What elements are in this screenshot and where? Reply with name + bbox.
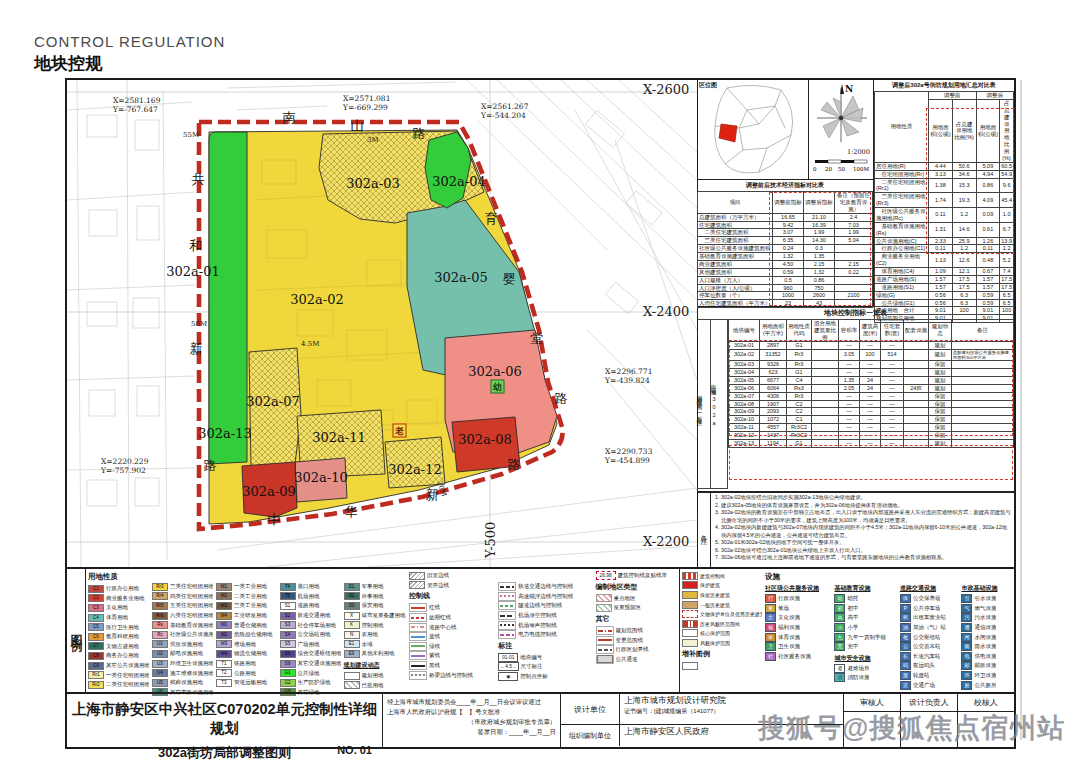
legend-item: ←4.5→ 尺寸标注 bbox=[498, 662, 592, 672]
landuse-swatch: S2 bbox=[280, 612, 296, 620]
summary-row: 道路广场用地(S)1.5717.5 1.5717.5 bbox=[875, 275, 1014, 283]
landuse-swatch: N bbox=[344, 631, 360, 639]
legend-item: 远期红线 bbox=[409, 613, 495, 623]
summary-row: 公共设施用地(C)2.3325.9 1.2613.9 bbox=[875, 237, 1014, 245]
facility-icon: 行 bbox=[765, 594, 776, 603]
heritage-swatch bbox=[682, 581, 698, 589]
control-row: 302a-121437Rr3C2 —— —保留 bbox=[729, 432, 1014, 440]
plan-map-svg: 老 幼 302a-01 302a-02 302a-03 302a-04 302a… bbox=[67, 80, 697, 567]
facility-icon: 初 bbox=[834, 604, 845, 613]
landuse-swatch: D1 bbox=[344, 583, 360, 591]
legend-item: 道路中心线 bbox=[409, 622, 495, 632]
legend-item: 历史风貌区范围线 bbox=[682, 619, 762, 629]
legend-item: T3 管道运输用地 bbox=[216, 678, 277, 688]
svg-text:婴: 婴 bbox=[503, 271, 516, 286]
facility-icon: 福 bbox=[765, 623, 776, 632]
landuse-swatch: Rc bbox=[152, 631, 168, 639]
facility-item: 完 完中 bbox=[834, 642, 897, 652]
location-highlight bbox=[719, 124, 737, 142]
line-swatch bbox=[409, 603, 427, 612]
legend-item: 绿线 bbox=[409, 642, 495, 652]
facility-item: 避 避难场所 bbox=[834, 664, 897, 674]
heritage-swatch bbox=[682, 610, 698, 618]
facility-item: 行 行政设施 bbox=[765, 594, 831, 604]
legend-item: G2 生产防护绿地 bbox=[280, 678, 341, 688]
legend-item: Rr4 四类住宅组团用地 bbox=[152, 592, 213, 602]
landuse-swatch: S6 bbox=[280, 650, 296, 658]
svg-text:堂: 堂 bbox=[531, 331, 544, 346]
legend-item: S5 广场用地 bbox=[280, 640, 341, 650]
control-table-cell: 地块控制指标一览表 编制地区类别：一般地区 街坊编号 302a 地块编号 用地面… bbox=[697, 307, 1014, 492]
eco-row: 基础教育设施建筑面积1.32 1.35 bbox=[698, 253, 873, 261]
legend-item: U5 殡葬设施用地 bbox=[152, 678, 213, 688]
facility-icon: 引 bbox=[961, 594, 972, 603]
legend-landuse-col4: T4 港口用地 T5 机场用地 S1 道路用地 S2 轨道交通用地 S3 社会停… bbox=[278, 569, 342, 692]
plot-label: 302a-05 bbox=[434, 270, 488, 285]
eco-row: 总建筑面积（万平方米）16.65 21.102.4 bbox=[698, 213, 873, 221]
north-label: N bbox=[845, 84, 853, 94]
legend-item: 规划用地 bbox=[344, 671, 407, 681]
legend-item: W2 危险品仓储用地 bbox=[216, 630, 277, 640]
landuse-swatch: W1 bbox=[216, 621, 232, 629]
facility-item: 菜 菜场 bbox=[765, 604, 831, 614]
facility-icon: 菜 bbox=[765, 604, 776, 613]
legend-landuse-col3: M1 一类工业用地 M2 二类工业用地 M3 三类工业用地 M4 工业研发用地 … bbox=[214, 569, 278, 692]
landuse-swatch: C4 bbox=[88, 614, 104, 622]
plan-sheet-page: CONTROL REGULATION 地块控规 bbox=[0, 0, 1080, 763]
legend-item: C2 商业服务业用地 bbox=[88, 594, 149, 604]
landuse-swatch: C6 bbox=[88, 633, 104, 641]
facility-item: 社 社区服务设施 bbox=[765, 652, 831, 662]
facility-item: 文 文化设施 bbox=[765, 613, 831, 623]
landuse-swatch: C3 bbox=[88, 604, 104, 612]
landuse-swatch: M4 bbox=[216, 612, 232, 620]
control-row: 302a-101072C1 —— —保留 bbox=[729, 416, 1014, 424]
org-unit-label: 组织编制单位 bbox=[561, 725, 620, 746]
plot-label: 302a-11 bbox=[312, 430, 366, 445]
eco-row: 三类住宅建筑面积6.35 14.305.04 bbox=[698, 237, 873, 245]
legend-item: G1 公共绿地 bbox=[280, 668, 341, 678]
eco-row: 其他建筑面积0.59 1.320.22 bbox=[698, 268, 873, 276]
facility-item: 电 供电设施 bbox=[961, 652, 1013, 662]
location-map bbox=[697, 80, 809, 180]
control-row: 302a-074306Rr3 —— —保留 bbox=[729, 392, 1014, 400]
elder-facility-icon: 老 bbox=[393, 424, 406, 437]
svg-text:中: 中 bbox=[268, 512, 281, 527]
mark-symbol: 01-01 bbox=[498, 653, 518, 662]
buildline-symbol: 26.98 bbox=[596, 571, 616, 580]
plot-label: 302a-04 bbox=[432, 174, 486, 189]
supplement-title: 增补图例 bbox=[682, 649, 762, 659]
facility-item: 保 公交保养场 bbox=[900, 594, 959, 604]
summary-row: 住宅组团用地(Rr)3.1334.6 4.9454.9 bbox=[875, 170, 1014, 178]
drawing-title: 302a街坊局部调整图则 NO. 01 bbox=[67, 744, 382, 762]
legend-item: 01-01 地块编号 bbox=[498, 653, 592, 663]
legend-item: 隧道边线与控制线 bbox=[498, 601, 592, 611]
summary-table-title: 调整后302a号街坊规划用地汇总对比表 bbox=[874, 80, 1014, 91]
line-swatch bbox=[596, 626, 614, 635]
facility-item: 消 消防设施 bbox=[834, 673, 897, 683]
line-swatch bbox=[596, 645, 614, 654]
landuse-swatch: W4 bbox=[216, 650, 232, 658]
note-item: 302a-02地块可结合302a-01地块公共绿地上开设人行出入口。 bbox=[721, 547, 1012, 555]
svg-text:55M: 55M bbox=[183, 131, 199, 139]
legend-item: U2 邮电设施用地 bbox=[152, 649, 213, 659]
landuse-swatch: W3 bbox=[216, 640, 232, 648]
landuse-swatch: C2 bbox=[88, 594, 104, 602]
legend-landuse-col1: 用地性质 C1 行政办公用地 C2 商业服务业用地 C3 文化用地 C4 体育用… bbox=[86, 569, 150, 692]
legend-item: U3 环境卫生设施用地 bbox=[152, 659, 213, 669]
facility-item: 雨 雨水设施 bbox=[961, 642, 1013, 652]
page-title-zh: 地块控规 bbox=[34, 52, 102, 75]
landuse-swatch: C8 bbox=[88, 652, 104, 660]
landuse-swatch: T3 bbox=[216, 679, 232, 687]
heritage-swatch bbox=[682, 620, 698, 628]
summary-row: 社区级公共服务设施用地(Rc)0.111.2 0.091.0 bbox=[875, 208, 1014, 223]
page-title-en: CONTROL REGULATION bbox=[34, 33, 225, 50]
plot-302a-01-area[interactable] bbox=[209, 132, 247, 464]
control-row: 302a-092093C2 —— —保留 bbox=[729, 408, 1014, 416]
legend-item: 一般历史建筑 bbox=[682, 600, 762, 610]
summary-row: 绿地(G)0.566.3 0.596.5 bbox=[875, 291, 1014, 299]
control-row: 302a-066064Rs3 2.0524 —24班规划 bbox=[729, 384, 1014, 392]
landuse-swatch: D2 bbox=[344, 592, 360, 600]
landuse-swatch: U1 bbox=[152, 640, 168, 648]
legend-item: C3 文化用地 bbox=[88, 603, 149, 613]
summary-row: 道路用地(S1)1.5717.5 1.5717.5 bbox=[875, 283, 1014, 291]
svg-text:20: 20 bbox=[825, 166, 832, 172]
landuse-swatch: D3 bbox=[344, 602, 360, 610]
legend-item: C4 体育用地 bbox=[88, 613, 149, 623]
landuse-swatch: M3 bbox=[216, 602, 232, 610]
summary-row: 居住用地(R)4.4450.6 5.0960.5 bbox=[875, 162, 1014, 170]
facility-icon: 枢 bbox=[900, 633, 911, 642]
landuse-swatch: G1 bbox=[280, 669, 296, 677]
summary-row: 二类住宅组团用地(Rr2)1.3815.3 0.869.6 bbox=[875, 178, 1014, 193]
zone-swatch bbox=[596, 604, 612, 612]
facility-item: 枢 公交枢纽站 bbox=[900, 632, 959, 642]
svg-text:老: 老 bbox=[394, 426, 404, 436]
landuse-swatch: G2 bbox=[280, 679, 296, 687]
legend-control-col1: 旧里边线 里弄边线 控制线 红线 远期红线 bbox=[407, 569, 496, 692]
legend-item: Rr5 五类住宅组团用地 bbox=[152, 601, 213, 611]
summary-table-cell: 调整后302a号街坊规划用地汇总对比表 用地性质 调整前 调整后 用地面积(公顷… bbox=[874, 80, 1014, 307]
facility-icon: 雨 bbox=[961, 642, 972, 651]
heritage-swatch bbox=[682, 572, 698, 580]
svg-text:路: 路 bbox=[204, 458, 217, 473]
control-highlight-box-2 bbox=[729, 445, 1013, 480]
drawing-sheet-frame: 老 幼 302a-01 302a-02 302a-03 302a-04 302a… bbox=[65, 78, 1016, 749]
legend-item: 旧里边线 bbox=[409, 571, 495, 581]
facility-item: 气 燃气设施 bbox=[961, 604, 1013, 614]
legend-item: U4 施工维修设施用地 bbox=[152, 668, 213, 678]
landuse-swatch: U2 bbox=[152, 650, 168, 658]
title-block-project: 上海市静安区中兴社区C070202单元控制性详细规划 302a街坊局部调整图则 … bbox=[67, 694, 383, 747]
dynamics-title: 规划建设动态 bbox=[344, 661, 407, 670]
landuse-swatch: Rr6 bbox=[152, 612, 168, 620]
supplement-swatch bbox=[682, 662, 698, 670]
facility-item: 污 污水设施 bbox=[961, 613, 1013, 623]
legend-item: Rr1 一类住宅组团用地 bbox=[88, 670, 149, 680]
mark-symbol: ◉ bbox=[498, 672, 518, 681]
facility-icon: 码 bbox=[900, 661, 911, 670]
facility-item: 初 初中 bbox=[834, 604, 897, 614]
eco-table: 项目 调整前指标 调整后指标 备注（预留住宅及教育设施） 总建筑面积（万平方米）… bbox=[697, 191, 873, 308]
line-swatch bbox=[498, 592, 516, 601]
other-title: 其它 bbox=[596, 614, 678, 624]
svg-text:新: 新 bbox=[190, 341, 203, 356]
legend-item: T5 机场用地 bbox=[280, 592, 341, 602]
svg-text:100M: 100M bbox=[853, 166, 869, 172]
control-lines-title: 控制线 bbox=[409, 591, 495, 601]
legend-item: 公共通道 bbox=[596, 655, 678, 665]
project-title: 上海市静安区中兴社区C070202单元控制性详细规划 bbox=[67, 700, 382, 738]
plot-label: 302a-10 bbox=[294, 470, 348, 485]
legend-item: W4 物流仓储用地 bbox=[216, 649, 277, 659]
svg-text:路: 路 bbox=[413, 126, 426, 141]
facility-item: 公 公交首末站 bbox=[900, 642, 959, 652]
facility-item: 渡 轮渡站 bbox=[900, 671, 959, 681]
facility-icon: 公 bbox=[900, 642, 911, 651]
legend-item: 风貌保护范围 bbox=[682, 638, 762, 648]
svg-text:X=2561.267: X=2561.267 bbox=[481, 102, 529, 111]
legend-item: 发展预留区 bbox=[596, 603, 678, 613]
landuse-swatch: C5 bbox=[88, 623, 104, 631]
legend-item: 黑线 bbox=[409, 661, 495, 671]
svg-text:路: 路 bbox=[508, 457, 521, 472]
svg-text:50M: 50M bbox=[191, 320, 207, 328]
landuse-swatch: Rr2 bbox=[88, 681, 104, 689]
facility-icon: 闸 bbox=[961, 633, 972, 642]
plot-label: 302a-03 bbox=[346, 176, 400, 191]
mark-symbol: ←4.5→ bbox=[498, 662, 518, 671]
line-swatch bbox=[498, 621, 516, 630]
facility-icon: 避 bbox=[834, 664, 845, 673]
facilities-title: 设施 bbox=[765, 572, 831, 582]
svg-text:山: 山 bbox=[351, 118, 364, 133]
approval-line-2: 上海市人民政府以沪府规【 】号文批准 bbox=[387, 707, 556, 717]
plot-label: 302a-01 bbox=[166, 264, 220, 279]
facility-icon: 幼 bbox=[834, 594, 845, 603]
control-row: 302a-081907C2 —— —保留 bbox=[729, 400, 1014, 408]
buildline-item: 26.98 建筑控制线及贴线率 bbox=[596, 571, 678, 581]
svg-text:新: 新 bbox=[426, 487, 439, 502]
legend-facility-traffic: 道路交通设施 保 公交保养场 P 公共停车场 租 出租车营业站 油 加油（气）站 bbox=[898, 569, 960, 692]
legend-heritage-col: 建筑控制线 保护建筑 保留历史建筑 一般历史建筑 文物保护单位及优秀历史建筑保护… bbox=[679, 569, 763, 692]
line-swatch bbox=[409, 661, 427, 670]
svg-text:Y=-454.899: Y=-454.899 bbox=[604, 456, 650, 465]
svg-text:X=2296.771: X=2296.771 bbox=[605, 367, 652, 376]
legend-item: C7 文物古迹用地 bbox=[88, 642, 149, 652]
landuse-swatch: S1 bbox=[280, 602, 296, 610]
svg-text:X-2400: X-2400 bbox=[643, 304, 689, 319]
legend-item: 核心保护范围 bbox=[682, 629, 762, 639]
legend-item: 行政区划界线 bbox=[596, 645, 678, 655]
heritage-swatch bbox=[682, 601, 698, 609]
eco-row: 停车位数量（个）1000 26002100 bbox=[698, 292, 873, 300]
legend-item: D3 保安用地 bbox=[344, 601, 407, 611]
legend-item: S4 公交场站用地 bbox=[280, 630, 341, 640]
control-row: 302a-04623G1 —— —规划 bbox=[729, 369, 1014, 377]
note-item: 302a-02地块应结合旧改同步实施302a-13地块公共绿地建设。 bbox=[721, 494, 1012, 502]
legend-block: 图例 用地性质 C1 行政办公用地 C2 商业服务业用地 C3 文化用地 C bbox=[67, 567, 1014, 692]
line-swatch bbox=[409, 632, 427, 641]
legend-item: 已批用地 bbox=[344, 680, 407, 690]
facility-icon: 小 bbox=[834, 623, 845, 632]
legend-item: S6 综合交通枢纽用地 bbox=[280, 649, 341, 659]
facility-icon: 电 bbox=[961, 652, 972, 661]
location-map-label: 区位图 bbox=[699, 81, 717, 90]
legend-item: M4 工业研发用地 bbox=[216, 611, 277, 621]
facility-icon: 完 bbox=[834, 642, 845, 651]
svg-text:Y=-757.902: Y=-757.902 bbox=[100, 466, 146, 475]
legend-item: U1 供应设施用地 bbox=[152, 640, 213, 650]
legend-item: 机场噪声控制线 bbox=[498, 620, 592, 630]
svg-text:0: 0 bbox=[813, 166, 817, 172]
landuse-swatch: K bbox=[344, 621, 360, 629]
facility-icon: 厕 bbox=[961, 681, 972, 690]
heritage-swatch bbox=[682, 629, 698, 637]
facility-icon: 交 bbox=[900, 681, 911, 690]
legend-landuse-col5: D1 军事用地 D2 外事用地 D3 保安用地 X 城市发展备建用地 K 控制用… bbox=[342, 569, 408, 692]
landuse-title: 用地性质 bbox=[88, 572, 149, 582]
line-swatch bbox=[409, 651, 427, 660]
facility-icon: 通 bbox=[961, 623, 972, 632]
facility-icon: 体 bbox=[765, 633, 776, 642]
facility-icon: 租 bbox=[900, 613, 911, 622]
legend-item: 电力电缆控制线 bbox=[498, 630, 592, 640]
facility-icon: P bbox=[900, 604, 911, 613]
paper-edge-shadow bbox=[1020, 80, 1022, 740]
plot-label: 302a-06 bbox=[468, 364, 522, 379]
line-swatch bbox=[498, 611, 516, 620]
facility-icon: 污 bbox=[961, 613, 972, 622]
landuse-swatch: C9 bbox=[88, 662, 104, 670]
legend-item: 红线 bbox=[409, 603, 495, 613]
legend-item: Rr6 六类住宅组团用地 bbox=[152, 611, 213, 621]
landuse-swatch: S3 bbox=[280, 621, 296, 629]
dynamics-swatch bbox=[344, 681, 360, 689]
summary-row: 三类住宅组团用地(Rr3)1.7419.3 4.0945.4 bbox=[875, 193, 1014, 208]
facility-item: 租 出租车营业站 bbox=[900, 613, 959, 623]
line-swatch bbox=[409, 671, 427, 680]
legend-item: W3 堆场用地 bbox=[216, 640, 277, 650]
note-item: 302a-06地块可通过地上连廊或者地下通道的形式，与育婴堂路东侧地块的公共教育… bbox=[721, 554, 1012, 562]
svg-text:4.5M: 4.5M bbox=[301, 340, 319, 348]
facility-item: 码 客运码头 bbox=[900, 661, 959, 671]
svg-text:X-2200: X-2200 bbox=[643, 534, 689, 549]
legend-item: C6 教育科研用地 bbox=[88, 632, 149, 642]
zone-types-title: 编制地区类型 bbox=[596, 582, 678, 592]
scale-label: 1:2000 bbox=[847, 148, 870, 156]
landuse-swatch: E1 bbox=[344, 640, 360, 648]
facility-icon: 九 bbox=[834, 633, 845, 642]
eco-row: 二类住宅建筑面积3.07 1.991.99 bbox=[698, 229, 873, 237]
legend-item: T4 港口用地 bbox=[280, 582, 341, 592]
legend-item: 轨道交通边线与控制线 bbox=[498, 582, 592, 592]
eco-row: 住宅建筑面积9.42 16.397.03 bbox=[698, 221, 873, 229]
legend-item: K 控制用地 bbox=[344, 620, 407, 630]
line-swatch bbox=[498, 582, 516, 591]
control-row: 302a-114557Rr3C2 —— —保留 bbox=[729, 424, 1014, 432]
legend-item: D1 军事用地 bbox=[344, 582, 407, 592]
education-title: 基础教育设施 bbox=[834, 584, 897, 593]
line-swatch bbox=[409, 623, 427, 632]
title-block-approval: 经上海市城市规划委员会____年__月__日会议审议通过 上海市人民政府以沪府规… bbox=[383, 694, 561, 747]
facility-item: 九 九年一贯制学校 bbox=[834, 632, 897, 642]
plot-label: 302a-07 bbox=[246, 394, 300, 409]
note-item: 302a-02地块的教育设施宜在中部独立占地布置，出入口设于地块内部道路并采用人… bbox=[721, 509, 1012, 524]
facility-item: 交 交通广场 bbox=[900, 680, 959, 690]
svg-text:X=2581.169: X=2581.169 bbox=[113, 96, 161, 105]
safety-title: 城市安全设施 bbox=[834, 654, 897, 663]
svg-text:Y-500: Y-500 bbox=[483, 522, 498, 559]
landuse-swatch: T5 bbox=[280, 592, 296, 600]
control-row: 302a-131194G1 —— —规划 bbox=[729, 439, 1014, 447]
legend-item: D2 外事用地 bbox=[344, 592, 407, 602]
svg-text:共: 共 bbox=[192, 172, 205, 187]
line-swatch bbox=[409, 642, 427, 651]
landuse-swatch: U5 bbox=[152, 679, 168, 687]
heritage-swatch bbox=[682, 639, 698, 647]
facility-icon: 渡 bbox=[900, 671, 911, 680]
landuse-swatch: T1 bbox=[216, 660, 232, 668]
legend-item: C1 行政办公用地 bbox=[88, 584, 149, 594]
eco-row: 人口规模（万人）0.5 0.86 bbox=[698, 276, 873, 284]
landuse-swatch: X bbox=[344, 612, 360, 620]
data-panel: 区位图 N bbox=[697, 80, 1014, 567]
facility-item: 体 体育设施 bbox=[765, 632, 831, 642]
summary-table: 用地性质 调整前 调整后 用地面积(公顷) 占总建设用地比例(%) 用地面积(公… bbox=[874, 91, 1014, 323]
svg-text:X=2220.229: X=2220.229 bbox=[101, 457, 149, 466]
facility-icon: 环 bbox=[961, 671, 972, 680]
legend-item: S3 社会停车场用地 bbox=[280, 620, 341, 630]
landuse-swatch: U4 bbox=[152, 669, 168, 677]
eco-table-cell: 调整前后技术经济指标对比表 项目 调整前指标 调整后指标 备注（预留住宅及教育设… bbox=[697, 180, 874, 307]
facility-icon: 社 bbox=[765, 652, 776, 661]
facility-item: 环 环卫设施 bbox=[961, 671, 1013, 681]
landuse-swatch: M2 bbox=[216, 592, 232, 600]
legend-item: 里弄边线 bbox=[409, 581, 495, 591]
legend-item: C5 医疗卫生用地 bbox=[88, 622, 149, 632]
facility-item: 油 加油（气）站 bbox=[900, 623, 959, 633]
municipal-title: 市政基础设施 bbox=[961, 584, 1013, 593]
legend-item: 机场净空控制线 bbox=[498, 611, 592, 621]
facility-icon: 保 bbox=[900, 594, 911, 603]
legend-item: 文物保护单位及优秀历史建筑保护范围线 bbox=[682, 609, 762, 619]
legend-item: ◉ 控制点坐标 bbox=[498, 672, 592, 682]
line-swatch bbox=[498, 630, 516, 639]
facility-icon: 高 bbox=[834, 613, 845, 622]
block-no-cell: 街坊编号 302a bbox=[711, 319, 728, 489]
svg-text:华: 华 bbox=[345, 504, 358, 519]
facility-icon: 卫 bbox=[765, 642, 776, 651]
legend-zone-col: 26.98 建筑控制线及贴线率 编制地区类型 重点地区 发展预留区 其它 bbox=[594, 569, 679, 692]
landuse-swatch: C7 bbox=[88, 642, 104, 650]
note-item: 建议302a-05地块的体育设施兼容设置，并为302a-06地块提供体育活动场地… bbox=[721, 502, 1012, 510]
landuse-swatch: T4 bbox=[280, 583, 296, 591]
plan-map: 老 幼 302a-01 302a-02 302a-03 302a-04 302a… bbox=[67, 80, 698, 567]
legend-facility-edu: 基础教育设施 幼 幼托 初 初中 高 高中 小 小学 bbox=[832, 569, 898, 692]
svg-text:和: 和 bbox=[189, 238, 203, 253]
landuse-swatch: E9 bbox=[344, 650, 360, 658]
svg-text:X=2571.081: X=2571.081 bbox=[343, 94, 390, 103]
landuse-swatch: M1 bbox=[216, 583, 232, 591]
facility-icon: 文 bbox=[765, 613, 776, 622]
legend-item: S9 其它交通设施用地 bbox=[280, 659, 341, 669]
line-swatch bbox=[596, 655, 614, 664]
control-table: 地块编号 用地面积(平方米) 用地性质代码 混合用地建筑量比例 容积率 建筑高度… bbox=[728, 319, 1014, 448]
